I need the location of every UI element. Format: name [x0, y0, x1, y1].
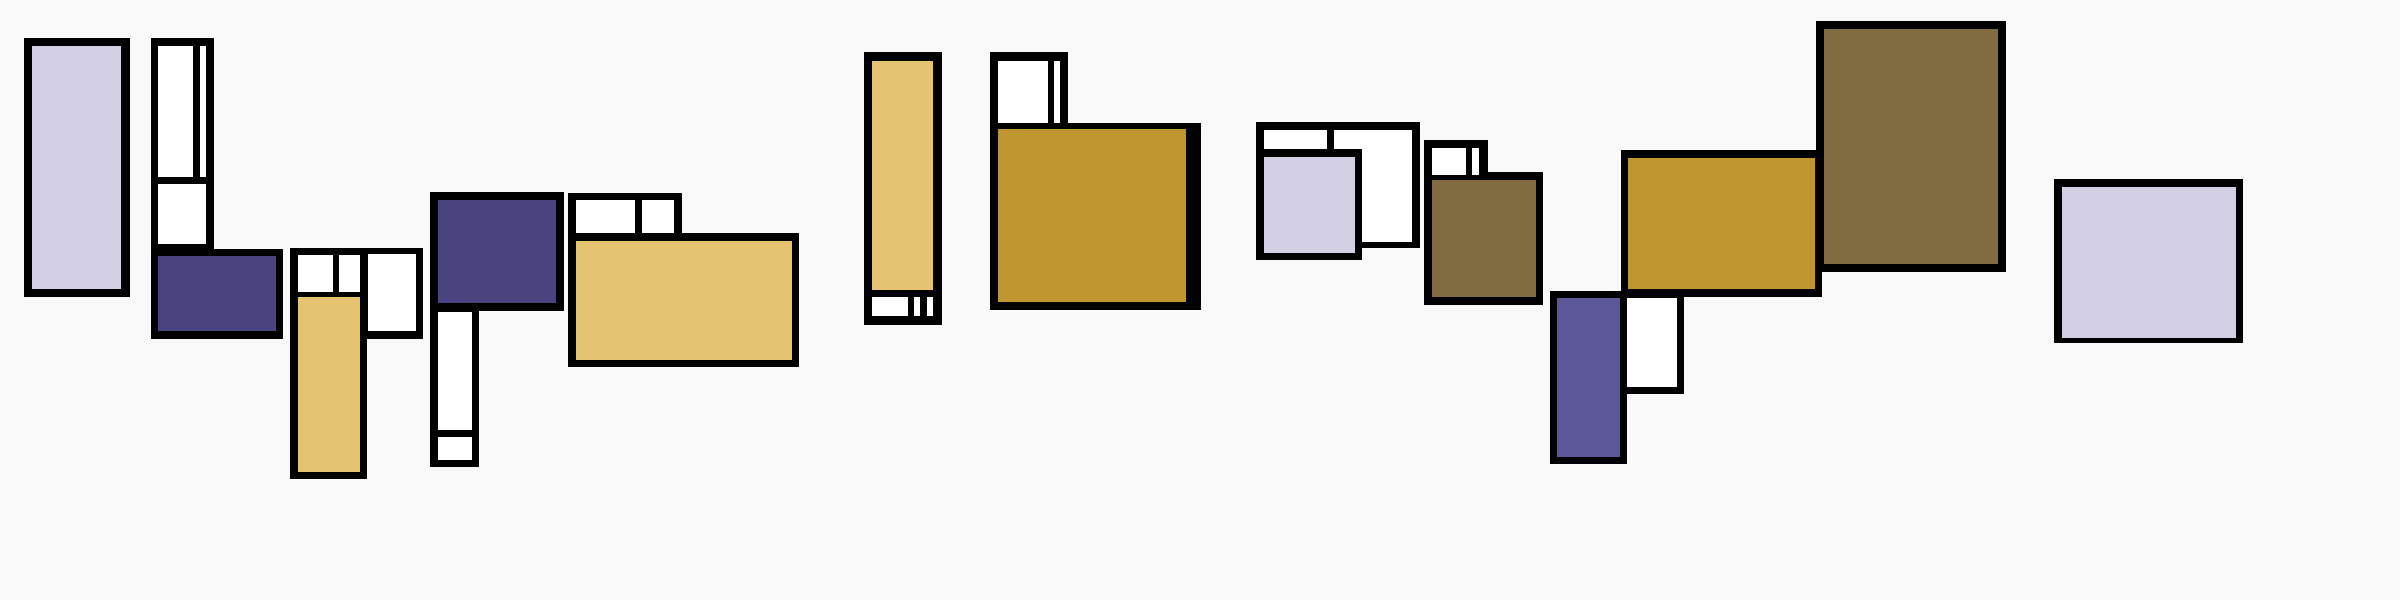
cluster-g-cell-2 [1054, 61, 1060, 123]
cluster-b-cell-3 [158, 184, 206, 244]
cluster-i-fill [1432, 180, 1536, 297]
cluster-b-cell-1 [158, 46, 193, 177]
cluster-j-cell-1 [1627, 298, 1677, 387]
cluster-f-cell-2 [914, 297, 920, 316]
cluster-f-cell-3 [927, 297, 933, 316]
cluster-e-cell-2 [642, 200, 674, 233]
cluster-g-fill [998, 129, 1186, 302]
cluster-l-fill [1824, 29, 1998, 264]
cluster-g-cell-1 [998, 61, 1048, 123]
cluster-h-fill [1264, 157, 1355, 253]
cluster-d-cell-1 [438, 312, 472, 430]
cluster-k-fill [1628, 158, 1815, 289]
cluster-e-fill [576, 241, 792, 360]
cluster-j-fill [1557, 298, 1620, 457]
cluster-i-cell-1 [1432, 148, 1466, 175]
cluster-c-fill [298, 297, 360, 472]
cluster-f-cell-1 [872, 297, 908, 316]
artwork-canvas [0, 0, 2400, 600]
cluster-c-cell-3 [368, 254, 416, 331]
cluster-m-fill [2062, 187, 2236, 338]
cluster-f-fill [872, 61, 933, 290]
cluster-a-fill [32, 46, 121, 289]
cluster-b-fill [158, 256, 276, 331]
cluster-d-fill [438, 200, 556, 303]
cluster-d-cell-2 [438, 437, 472, 460]
cluster-c-cell-1 [298, 255, 333, 292]
cluster-h-cell-1 [1264, 130, 1327, 149]
cluster-b-cell-2 [200, 46, 206, 177]
cluster-i-cell-2 [1472, 148, 1479, 175]
cluster-e-cell-1 [576, 200, 635, 233]
cluster-c-cell-2 [339, 255, 360, 292]
